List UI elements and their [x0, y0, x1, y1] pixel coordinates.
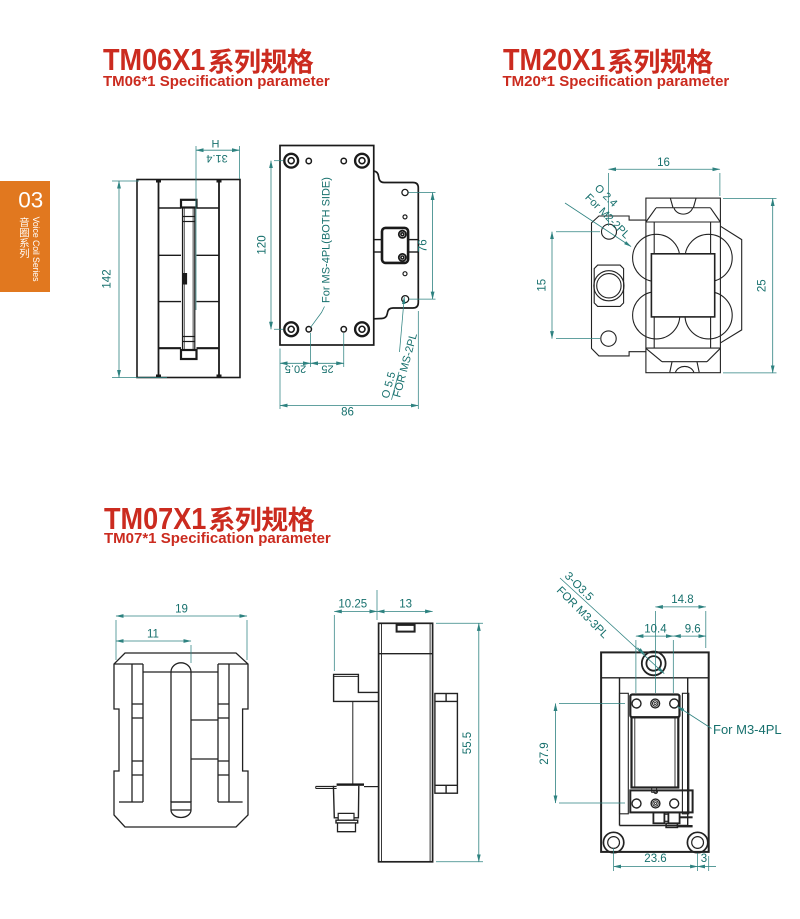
svg-text:14.8: 14.8	[671, 594, 693, 606]
svg-text:9.6: 9.6	[685, 624, 701, 636]
svg-text:For M3-4PL: For M3-4PL	[713, 722, 782, 737]
svg-text:15: 15	[536, 279, 548, 292]
svg-text:25: 25	[321, 363, 333, 375]
svg-text:H: H	[212, 139, 220, 151]
svg-text:10.4: 10.4	[644, 624, 667, 636]
svg-text:13: 13	[399, 599, 412, 611]
svg-text:55.5: 55.5	[462, 732, 474, 754]
svg-text:142: 142	[102, 269, 114, 288]
svg-text:27.9: 27.9	[539, 742, 551, 764]
svg-text:10.25: 10.25	[338, 599, 367, 611]
svg-text:For MS-4PL(BOTH SIDE): For MS-4PL(BOTH SIDE)	[321, 177, 333, 303]
svg-text:25: 25	[757, 279, 769, 292]
svg-text:120: 120	[257, 235, 269, 254]
svg-text:3: 3	[701, 853, 707, 865]
svg-text:86: 86	[341, 407, 354, 419]
svg-text:03: 03	[18, 188, 43, 213]
svg-text:FOR MS-2PL: FOR MS-2PL	[391, 332, 420, 399]
svg-text:11: 11	[147, 629, 159, 641]
svg-text:20.5: 20.5	[285, 363, 306, 375]
svg-text:16: 16	[657, 157, 670, 169]
svg-text:76: 76	[418, 239, 430, 252]
svg-text:19: 19	[175, 604, 188, 616]
svg-text:23.6: 23.6	[644, 853, 666, 865]
svg-text:31.4: 31.4	[206, 152, 227, 164]
svg-text:Voice Coil Series: Voice Coil Series	[31, 217, 41, 282]
